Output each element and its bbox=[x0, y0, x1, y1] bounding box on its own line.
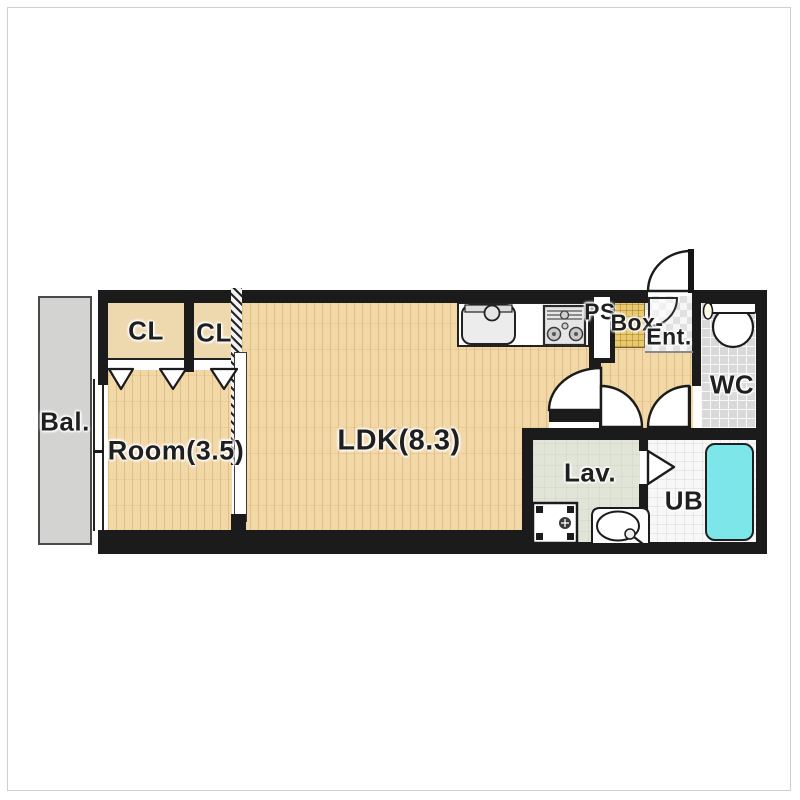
toilet-icon bbox=[704, 300, 757, 347]
balcony-label: Bal. bbox=[40, 407, 90, 438]
entrance-door-swing-icon bbox=[648, 251, 691, 291]
room-label: Room(3.5) bbox=[108, 436, 245, 467]
lavatory-label: Lav. bbox=[564, 458, 616, 489]
lav-door-swing-icon bbox=[549, 368, 601, 410]
washer-pan-icon bbox=[533, 503, 577, 543]
stove-icon bbox=[544, 306, 585, 345]
wc-door-swing-icon bbox=[648, 386, 689, 427]
hall-door-swing-icon bbox=[601, 386, 642, 427]
closet-bifold-icons bbox=[109, 369, 237, 389]
fixtures-overlay bbox=[0, 0, 800, 800]
bath-folding-door-icon bbox=[648, 451, 674, 484]
kitchen-sink-icon bbox=[462, 305, 515, 344]
unit-bath-label: UB bbox=[665, 486, 704, 517]
vanity-sink-icon bbox=[592, 508, 649, 544]
floor-plan: Bal. CL CL Room(3.5) LDK(8.3) PS Box- En… bbox=[0, 0, 800, 800]
ldk-label: LDK(8.3) bbox=[337, 425, 460, 458]
entrance-door-leaf-icon bbox=[688, 249, 694, 293]
wc-label: WC bbox=[710, 370, 754, 401]
closet-left-label: CL bbox=[128, 316, 164, 347]
entrance-label: Ent. bbox=[646, 324, 691, 351]
closet-right-label: CL bbox=[196, 318, 232, 349]
